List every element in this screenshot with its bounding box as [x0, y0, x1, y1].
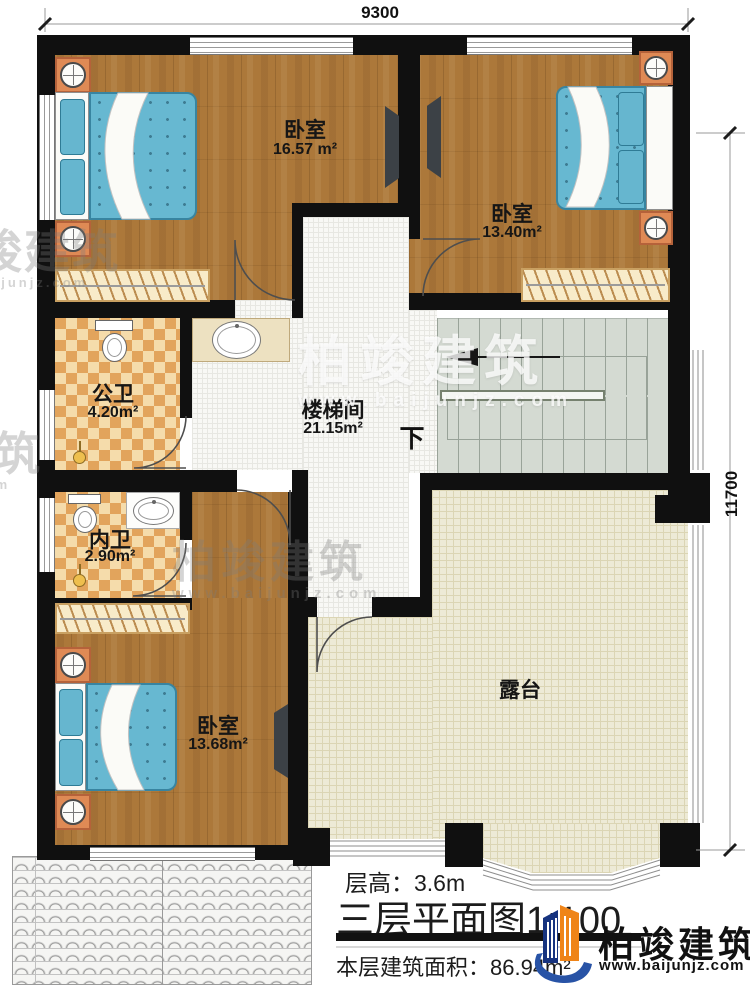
- room-area-stairwell: 21.15m²: [303, 420, 363, 438]
- plan-linework: [0, 0, 750, 989]
- title-underline: [336, 933, 641, 941]
- door-swings: [133, 239, 480, 672]
- watermark: 柏竣建筑 www.baijunjz.com: [172, 540, 381, 602]
- watermark-url: www.baijunjz.com: [172, 586, 381, 602]
- dimension-ticks: [39, 18, 736, 856]
- watermark-url: www.baijunjz.com: [298, 391, 574, 411]
- watermark-company: 柏竣建筑: [298, 334, 574, 391]
- watermark-company: 柏竣建筑: [0, 430, 42, 478]
- room-area-bedroom-tr: 13.40m²: [482, 224, 542, 242]
- watermark-url: www.baijunjz.com: [0, 276, 120, 290]
- company-logo-icon: [527, 900, 595, 986]
- room-label-bedroom-tl: 卧室: [284, 114, 326, 144]
- watermark-url: www.baijunjz.com: [0, 478, 42, 492]
- stairs-down-label: 下: [399, 419, 424, 455]
- floor-plan-canvas: 卧室 16.57 m² 卧室 13.40m² 公卫 4.20m² 楼梯间 21.…: [0, 0, 750, 989]
- dimension-lines: [45, 8, 745, 850]
- room-label-terrace: 露台: [499, 674, 541, 704]
- title-underline-thin: [336, 946, 641, 948]
- dimension-width-label: 9300: [348, 3, 412, 23]
- room-area-private-bath: 2.90m²: [85, 548, 136, 566]
- watermark: 柏竣建筑 www.baijunjz.com: [298, 334, 574, 411]
- dimension-height-label: 11700: [722, 461, 742, 527]
- watermark: 柏竣建筑 www.baijunjz.com: [0, 228, 120, 290]
- company-website: www.baijunjz.com: [599, 957, 744, 974]
- watermark-company: 柏竣建筑: [0, 228, 120, 276]
- room-area-bedroom-tl: 16.57 m²: [273, 141, 337, 159]
- watermark-company: 柏竣建筑: [172, 540, 381, 586]
- watermark: 柏竣建筑 www.baijunjz.com: [0, 430, 42, 492]
- room-area-public-bath: 4.20m²: [88, 404, 139, 422]
- terrace-railings: [330, 350, 703, 890]
- room-area-bedroom-bl: 13.68m²: [188, 736, 248, 754]
